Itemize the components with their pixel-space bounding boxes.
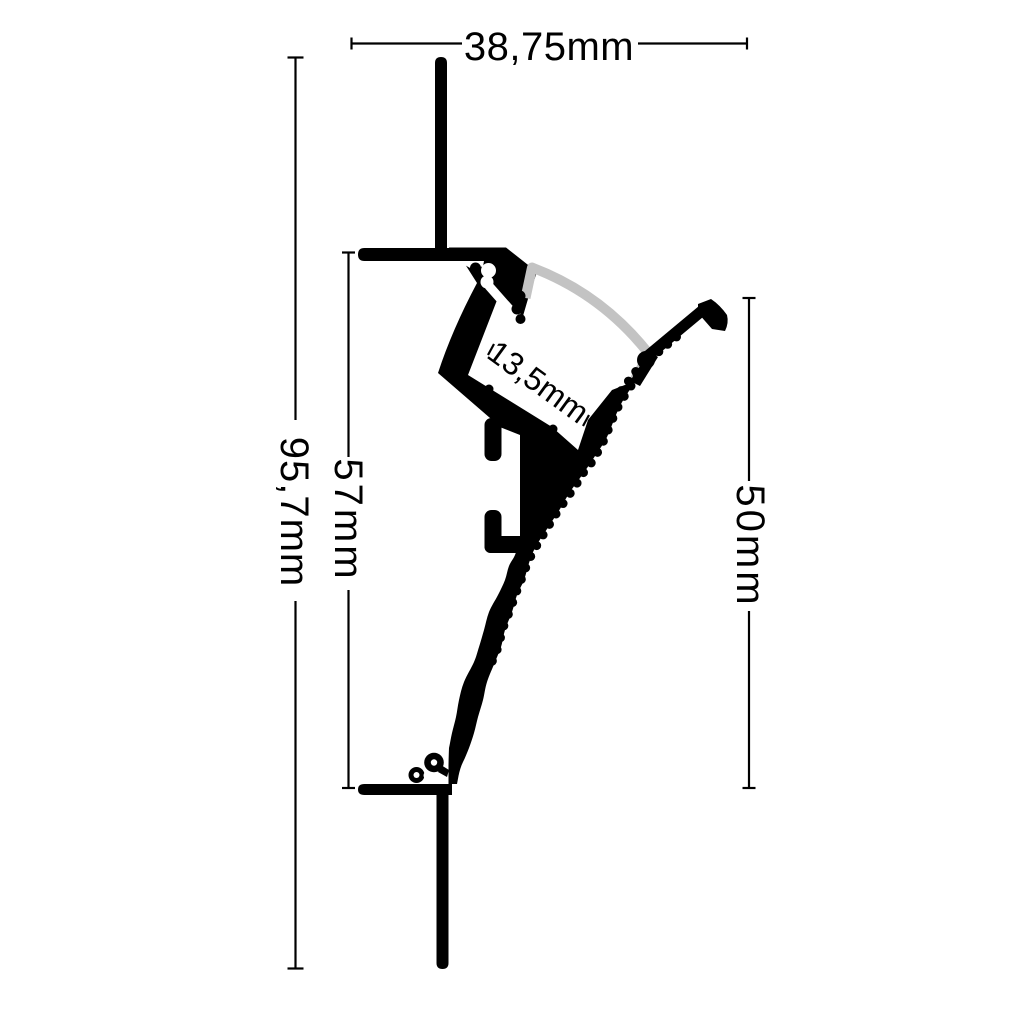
svg-text:95,7mm: 95,7mm xyxy=(272,437,316,588)
svg-text:50mm: 50mm xyxy=(728,484,772,607)
svg-text:57mm: 57mm xyxy=(326,458,370,581)
svg-text:38,75mm: 38,75mm xyxy=(464,25,634,69)
